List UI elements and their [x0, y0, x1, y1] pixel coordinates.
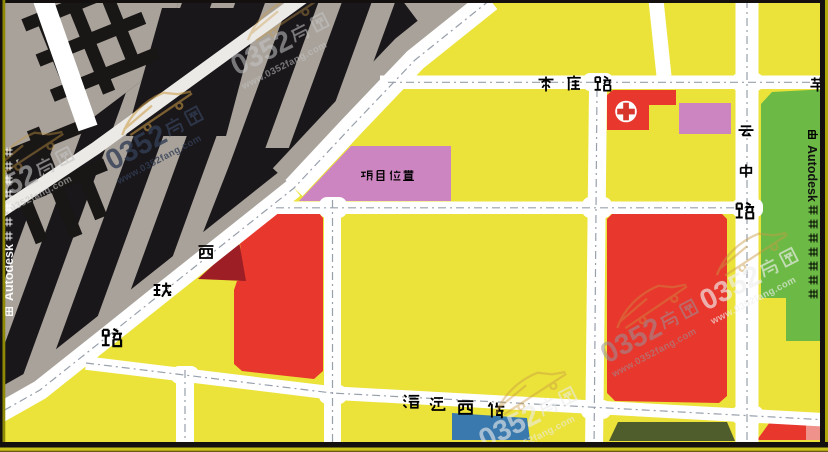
svg-text:Autodesk: Autodesk	[805, 145, 819, 202]
